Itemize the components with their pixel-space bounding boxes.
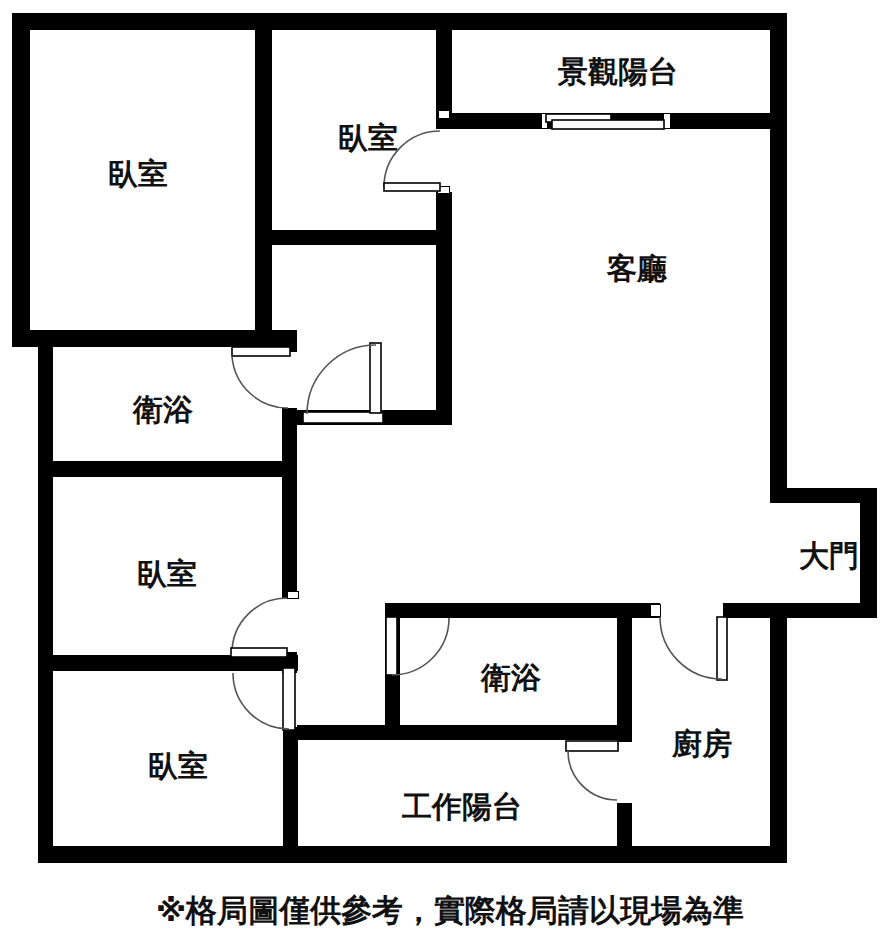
room-label-scenic-balcony: 景觀陽台 [557,55,678,88]
disclaimer-note: ※格局圖僅供參考，實際格局請以現場為準 [156,893,744,928]
wall [436,30,452,115]
door-swing-arc [233,673,289,729]
wall [38,330,53,863]
room-label-bedroom-top-left: 臥室 [108,157,168,190]
door-jamb [438,110,449,118]
window-panel [552,120,664,129]
wall [617,803,632,863]
door-swing-arc [232,598,287,653]
door-leaf [232,347,290,356]
floor-plan-canvas: 臥室 臥室 景觀陽台 客廳 衛浴 臥室 大門 臥室 衛浴 工作陽台 廚房 ※格局… [0,0,889,940]
wall [12,13,30,347]
wall [385,603,660,618]
wall [723,603,877,618]
room-label-bedroom-bottom-left: 臥室 [148,749,208,782]
room-label-bedroom-middle-left: 臥室 [137,557,197,590]
floor-plan: 臥室 臥室 景觀陽台 客廳 衛浴 臥室 大門 臥室 衛浴 工作陽台 廚房 ※格局… [0,0,889,940]
door-swing-arc [392,618,449,675]
door-leaf [283,668,295,730]
wall [770,13,787,490]
door-leaf [566,741,618,751]
room-label-bathroom-upper: 衛浴 [132,393,193,426]
room-label-living-room: 客廳 [606,252,668,285]
door-leaf [717,617,727,680]
wall [282,408,297,598]
door-swing-arc [568,751,617,800]
wall [436,192,452,425]
door-swing-arc [232,356,288,408]
room-label-bathroom-lower: 衛浴 [480,661,541,694]
room-label-kitchen: 廚房 [671,727,732,760]
door-leaf [231,648,287,657]
wall [38,846,787,863]
room-label-bedroom-top-middle: 臥室 [338,121,398,154]
doors [231,110,727,800]
room-labels: 臥室 臥室 景觀陽台 客廳 衛浴 臥室 大門 臥室 衛浴 工作陽台 廚房 [108,55,859,823]
walls [12,13,877,863]
door-swing-arc [307,345,376,414]
wall [255,230,450,245]
door-jamb [650,604,660,616]
wall [617,618,632,742]
wall [283,727,298,848]
door-leaf [384,183,440,191]
room-label-main-door: 大門 [799,539,859,572]
wall [12,330,297,347]
wall [255,13,272,347]
wall [297,725,632,740]
room-label-work-balcony: 工作陽台 [401,790,522,823]
wall [860,488,877,618]
wall [770,603,787,863]
wall [38,461,297,477]
door-leaf [386,617,397,675]
wall [12,13,787,30]
door-swing-arc [660,617,722,679]
door-jamb [287,591,298,598]
door-leaf [370,343,381,413]
